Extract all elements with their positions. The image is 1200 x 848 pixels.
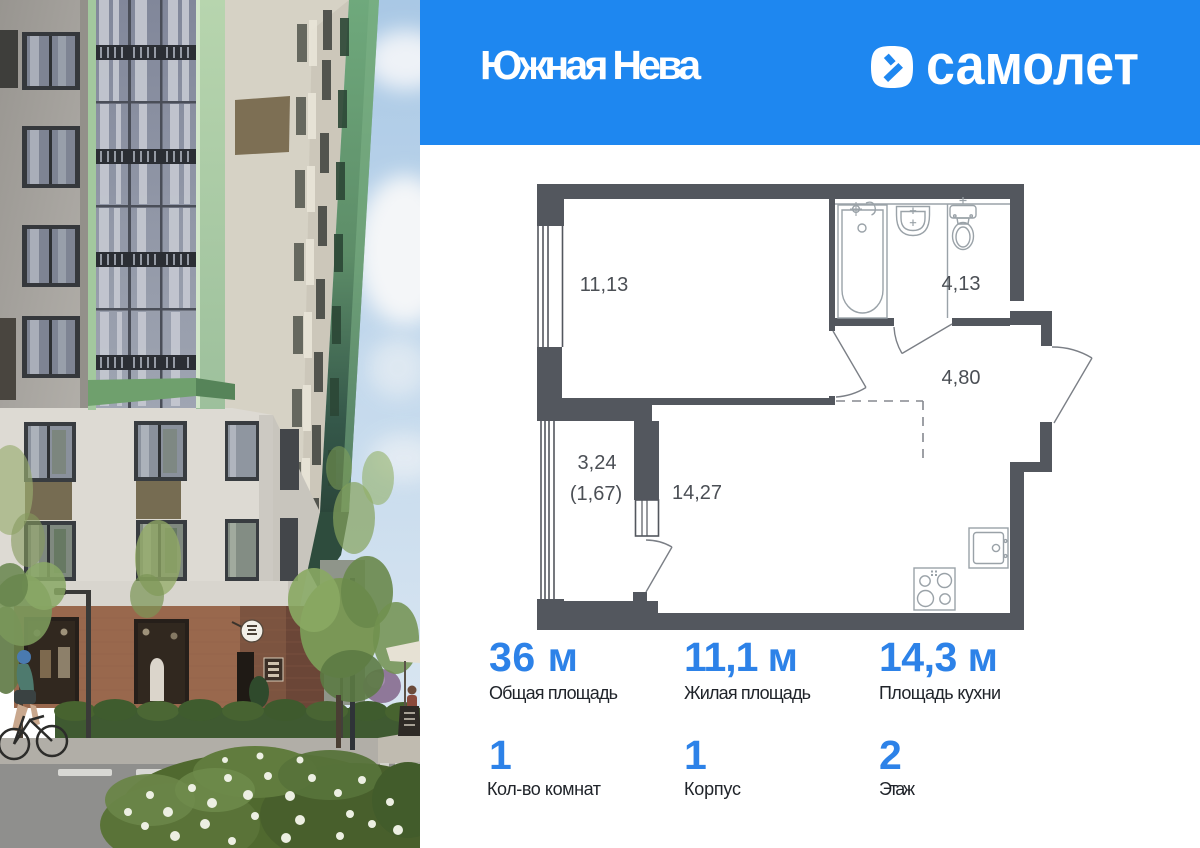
svg-text:11,13: 11,13 — [580, 274, 629, 296]
svg-text:1: 1 — [489, 732, 512, 778]
svg-text:Кол-во комнат: Кол-во комнат — [487, 779, 601, 799]
svg-text:3,24: 3,24 — [578, 452, 617, 474]
svg-text:4,80: 4,80 — [942, 367, 981, 389]
svg-text:Южная Нева: Южная Нева — [480, 42, 702, 88]
svg-text:14,3 м: 14,3 м — [879, 634, 998, 680]
svg-text:36 м: 36 м — [489, 634, 578, 680]
svg-text:2: 2 — [879, 732, 902, 778]
svg-text:14,27: 14,27 — [672, 482, 722, 504]
svg-text:1: 1 — [684, 732, 707, 778]
svg-text:Общая площадь: Общая площадь — [489, 683, 618, 703]
svg-text:Этаж: Этаж — [879, 779, 915, 799]
svg-text:Площадь кухни: Площадь кухни — [879, 683, 1001, 703]
svg-text:(1,67): (1,67) — [570, 483, 622, 505]
svg-text:самолет: самолет — [926, 33, 1139, 97]
svg-text:Жилая площадь: Жилая площадь — [684, 683, 811, 703]
svg-text:4,13: 4,13 — [942, 273, 981, 295]
svg-text:Корпус: Корпус — [684, 779, 741, 799]
svg-text:11,1 м: 11,1 м — [684, 634, 798, 680]
